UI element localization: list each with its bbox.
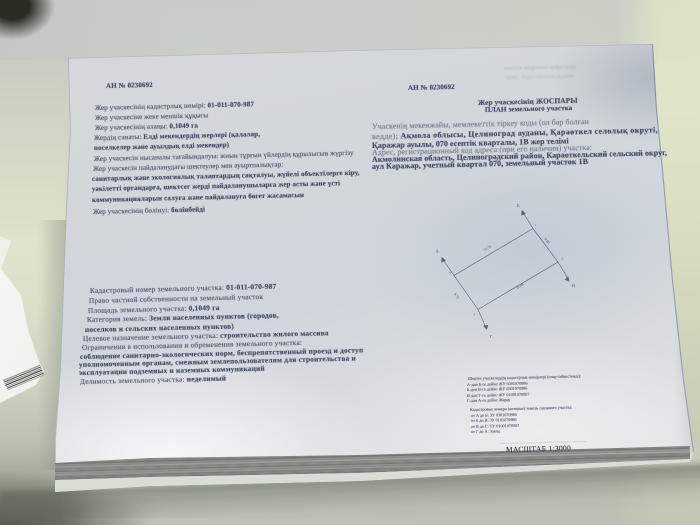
- svg-text:А: А: [436, 249, 440, 254]
- svg-text:2: 2: [562, 257, 564, 261]
- svg-text:33.08: 33.08: [516, 283, 525, 291]
- svg-text:4: 4: [449, 271, 451, 275]
- svg-text:3: 3: [474, 313, 476, 317]
- svg-text:Б: Б: [517, 203, 520, 208]
- svg-text:Г: Г: [490, 334, 493, 339]
- svg-text:В: В: [572, 283, 575, 288]
- svg-text:31.78: 31.78: [483, 245, 492, 253]
- svg-text:9.79: 9.79: [453, 292, 460, 300]
- svg-text:1: 1: [535, 223, 537, 227]
